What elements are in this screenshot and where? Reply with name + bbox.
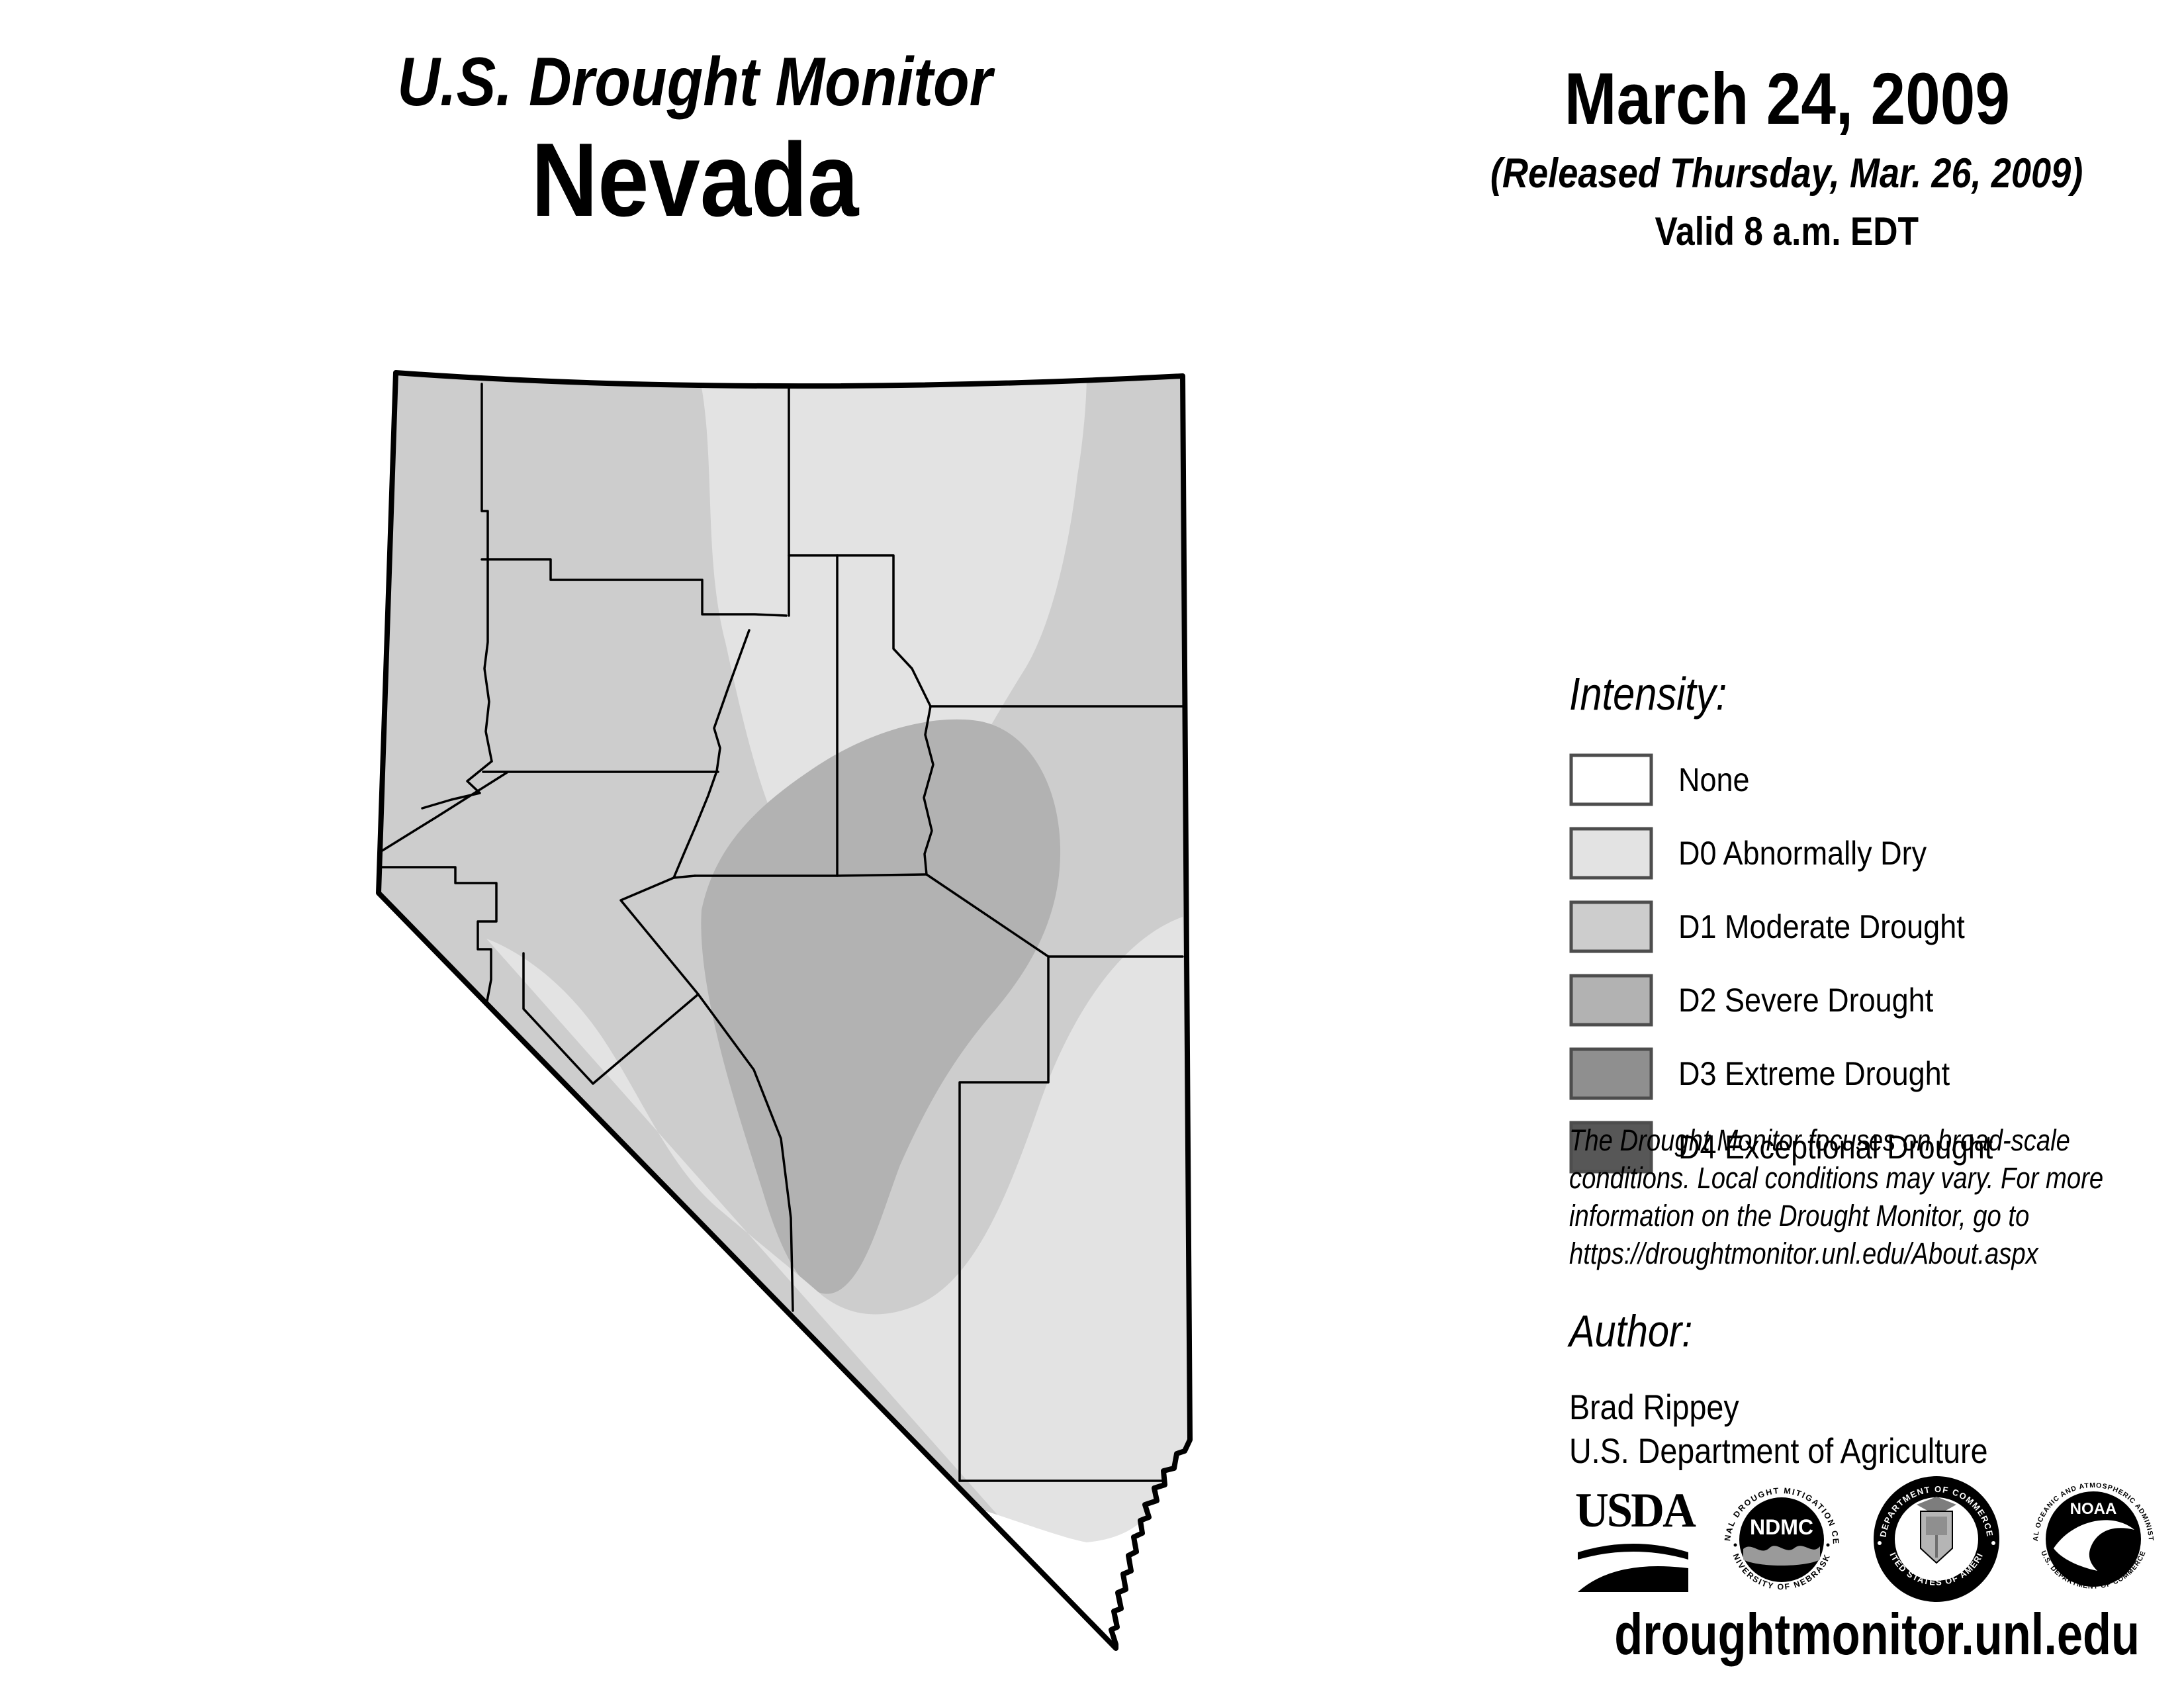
author-block: Author: Brad Rippey U.S. Department of A… <box>1569 1305 2045 1474</box>
report-title: U.S. Drought Monitor <box>397 46 992 118</box>
date-block: March 24, 2009 (Released Thursday, Mar. … <box>1416 63 2158 252</box>
disclaimer-line-4: https://droughtmonitor.unl.edu/About.asp… <box>1569 1235 2038 1272</box>
title-block: U.S. Drought Monitor Nevada <box>278 46 1112 232</box>
legend-row-d1: D1 Moderate Drought <box>1569 900 2028 953</box>
legend-swatch-none <box>1569 753 1653 806</box>
author-org: U.S. Department of Agriculture <box>1569 1430 1988 1474</box>
legend-swatch-d1 <box>1569 900 1653 953</box>
noaa-logo: NATIONAL OCEANIC AND ATMOSPHERIC ADMINIS… <box>2029 1475 2158 1604</box>
ndmc-wave-icon <box>1743 1546 1820 1566</box>
legend-swatch-d0 <box>1569 827 1653 880</box>
disclaimer-line-3: information on the Drought Monitor, go t… <box>1569 1197 2029 1235</box>
usda-swoosh-icon <box>1575 1539 1691 1593</box>
disclaimer-text: The Drought Monitor focuses on broad-sca… <box>1569 1121 2184 1272</box>
county-line-nye-north <box>695 874 927 876</box>
drought-monitor-page: U.S. Drought Monitor Nevada March 24, 20… <box>0 0 2184 1688</box>
author-name: Brad Rippey <box>1569 1386 1739 1430</box>
ndmc-logo-text: NDMC <box>1750 1515 1813 1539</box>
released-date: (Released Thursday, Mar. 26, 2009) <box>1490 153 2083 195</box>
footer-url-block: droughtmonitor.unl.edu <box>1549 1601 2184 1668</box>
legend-heading: Intensity: <box>1569 667 1727 720</box>
disclaimer-line-1: The Drought Monitor focuses on broad-sca… <box>1569 1121 2070 1159</box>
doc-ship-icon <box>1926 1517 1947 1535</box>
usda-logo-text: USDA <box>1575 1483 1694 1539</box>
usda-logo: USDA <box>1575 1483 1691 1597</box>
author-heading: Author: <box>1569 1305 1692 1357</box>
doc-seal: DEPARTMENT OF COMMERCE UNITED STATES OF … <box>1872 1475 2001 1604</box>
legend-row-d3: D3 Extreme Drought <box>1569 1047 2028 1100</box>
legend-swatch-d3 <box>1569 1047 1653 1100</box>
map-date: March 24, 2009 <box>1564 63 2009 136</box>
noaa-logo-text: NOAA <box>2070 1500 2117 1518</box>
legend-label-d3: D3 Extreme Drought <box>1678 1055 1950 1093</box>
ndmc-logo: NATIONAL DROUGHT MITIGATION CENTER UNIVE… <box>1719 1477 1844 1603</box>
disclaimer-line-2: conditions. Local conditions may vary. F… <box>1569 1159 2103 1197</box>
nevada-drought-map <box>357 357 1231 1655</box>
legend-row-d0: D0 Abnormally Dry <box>1569 827 2028 880</box>
footer-url: droughtmonitor.unl.edu <box>1614 1601 2140 1668</box>
legend-row-d2: D2 Severe Drought <box>1569 974 2028 1027</box>
legend-label-d1: D1 Moderate Drought <box>1678 908 1965 946</box>
legend-row-none: None <box>1569 753 2028 806</box>
legend-swatch-d2 <box>1569 974 1653 1027</box>
state-title: Nevada <box>531 128 859 232</box>
legend-label-d0: D0 Abnormally Dry <box>1678 834 1927 872</box>
legend-label-d2: D2 Severe Drought <box>1678 981 1933 1019</box>
intensity-legend: Intensity: None D0 Abnormally Dry D1 Mod… <box>1569 667 2028 1194</box>
agency-logos: USDA NATIONAL DROUGHT MITIGATION CENTER … <box>1575 1475 2158 1604</box>
legend-label-none: None <box>1678 761 1750 799</box>
valid-time: Valid 8 a.m. EDT <box>1655 212 1919 252</box>
